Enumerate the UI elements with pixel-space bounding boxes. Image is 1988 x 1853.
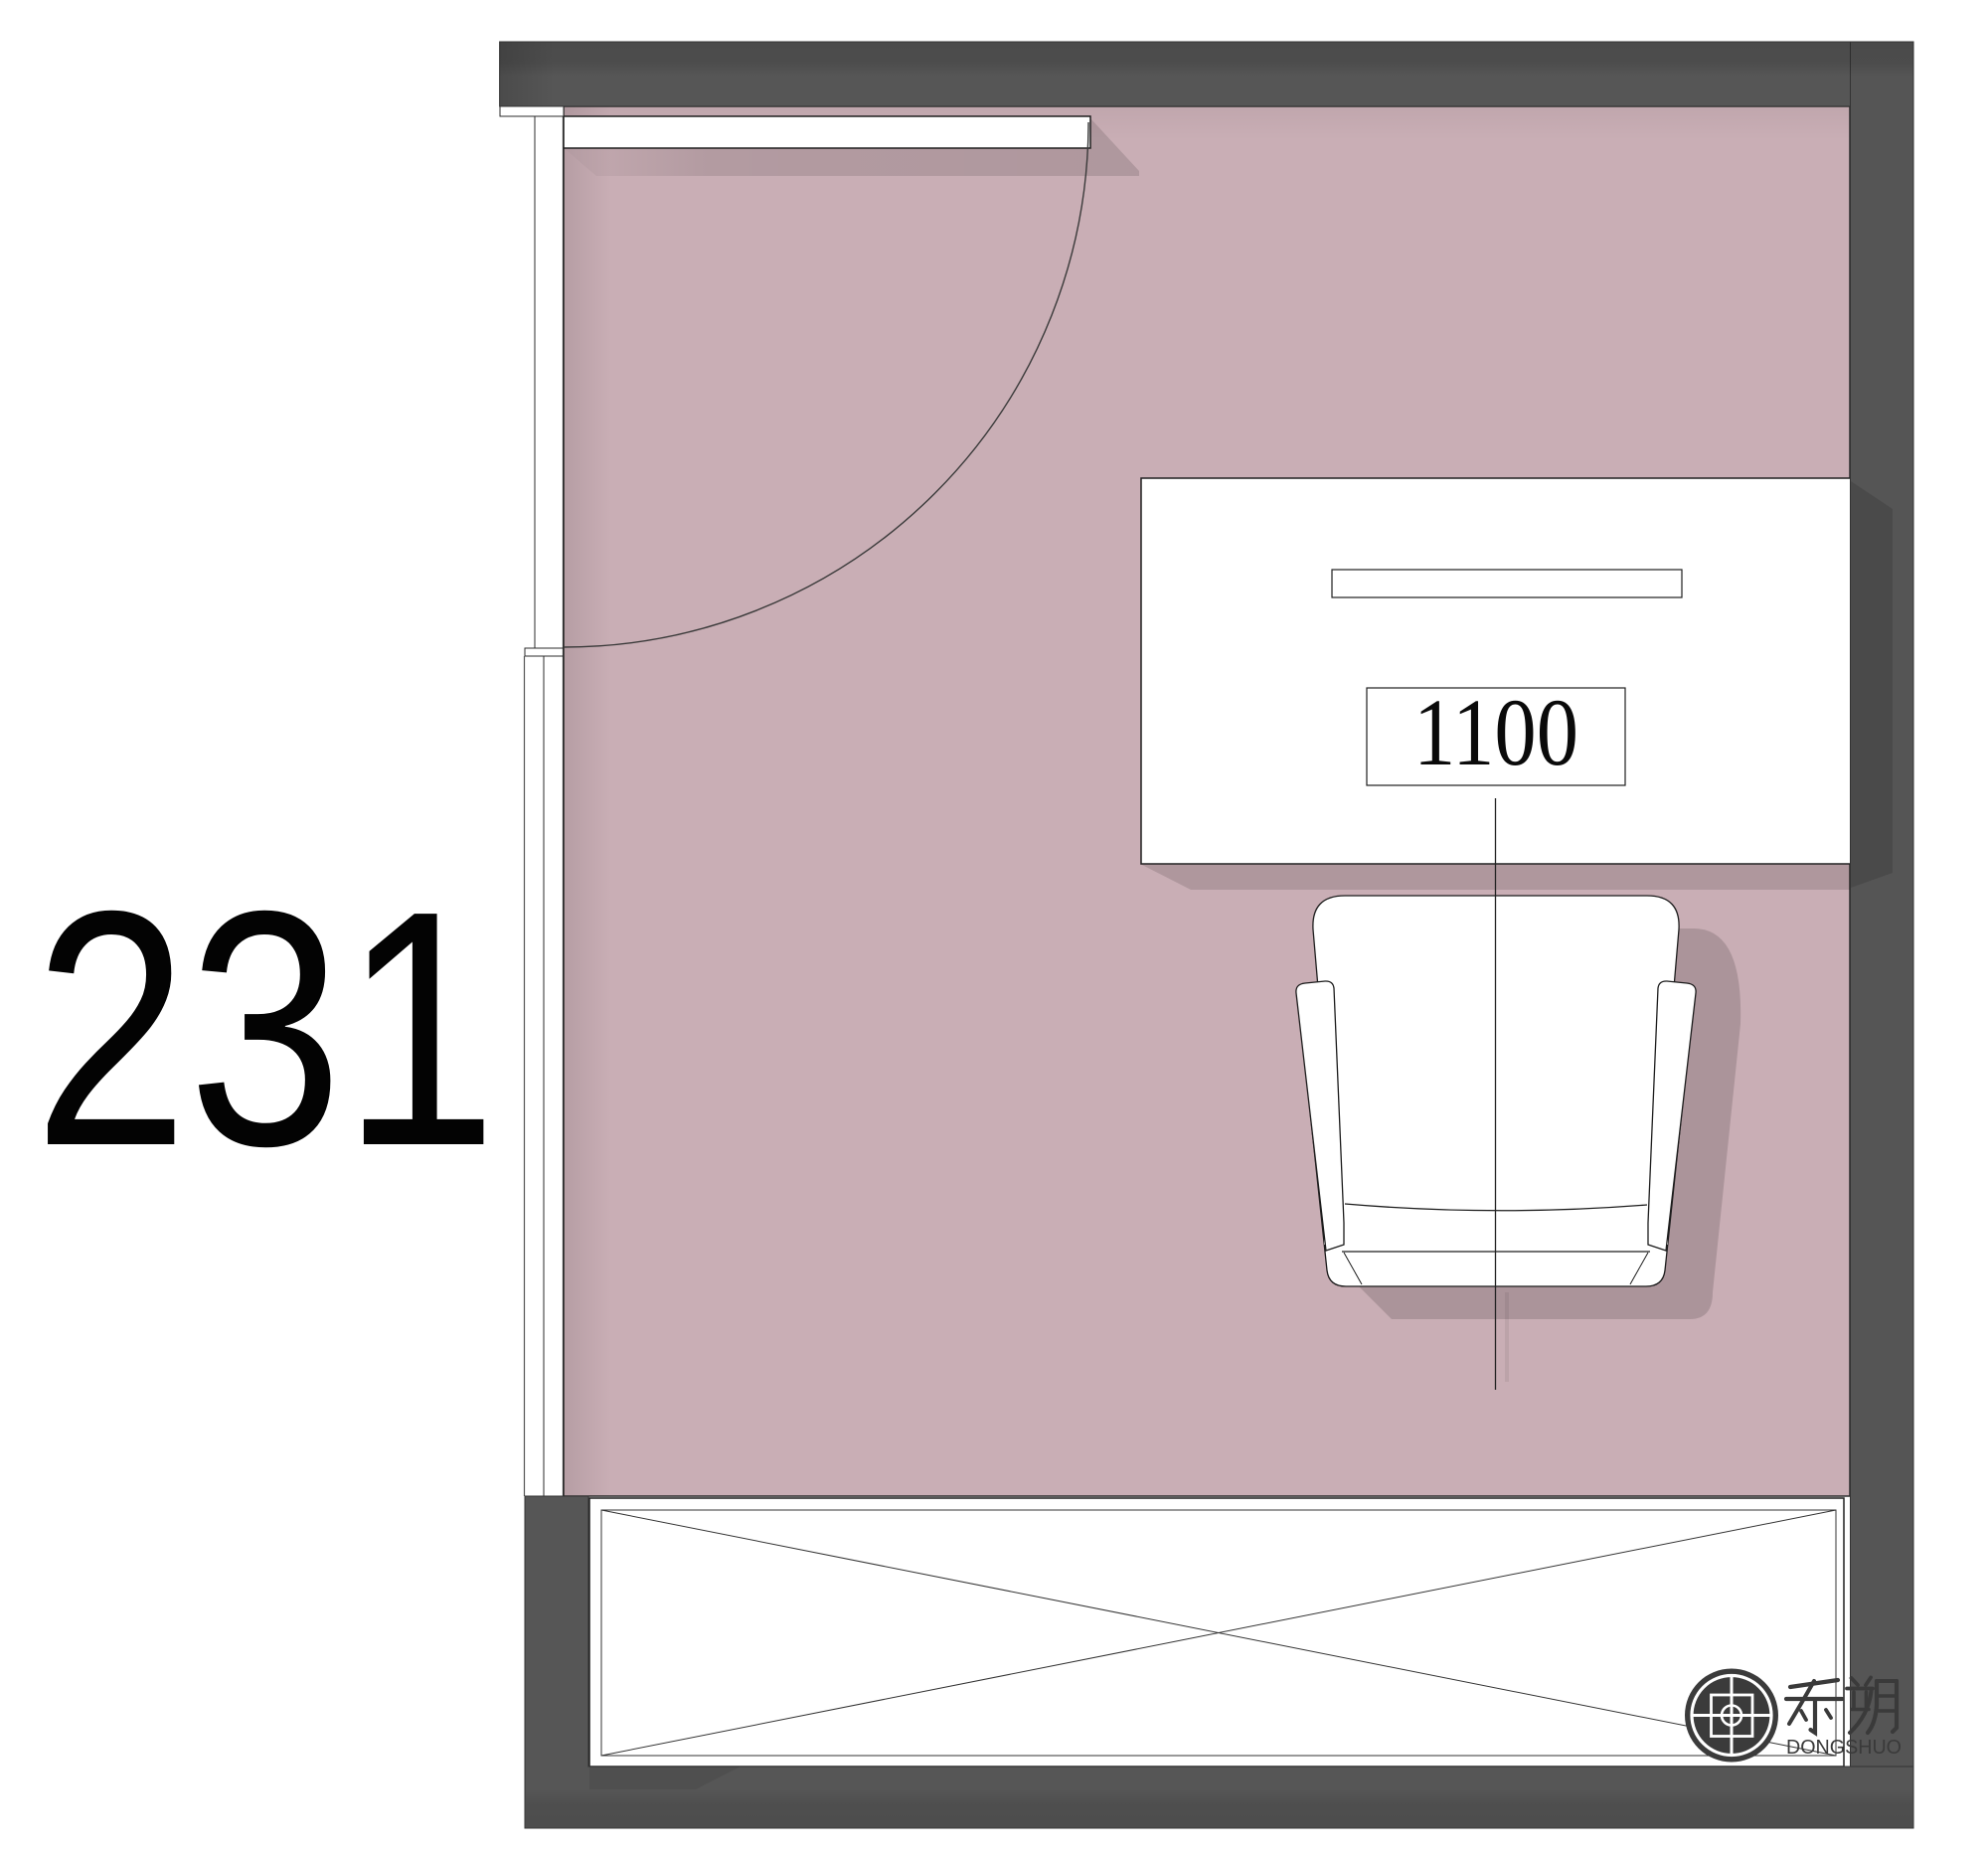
svg-text:DONGSHUO: DONGSHUO [1786, 1737, 1902, 1759]
svg-text:231: 231 [34, 842, 497, 1216]
svg-text:1100: 1100 [1413, 679, 1578, 785]
